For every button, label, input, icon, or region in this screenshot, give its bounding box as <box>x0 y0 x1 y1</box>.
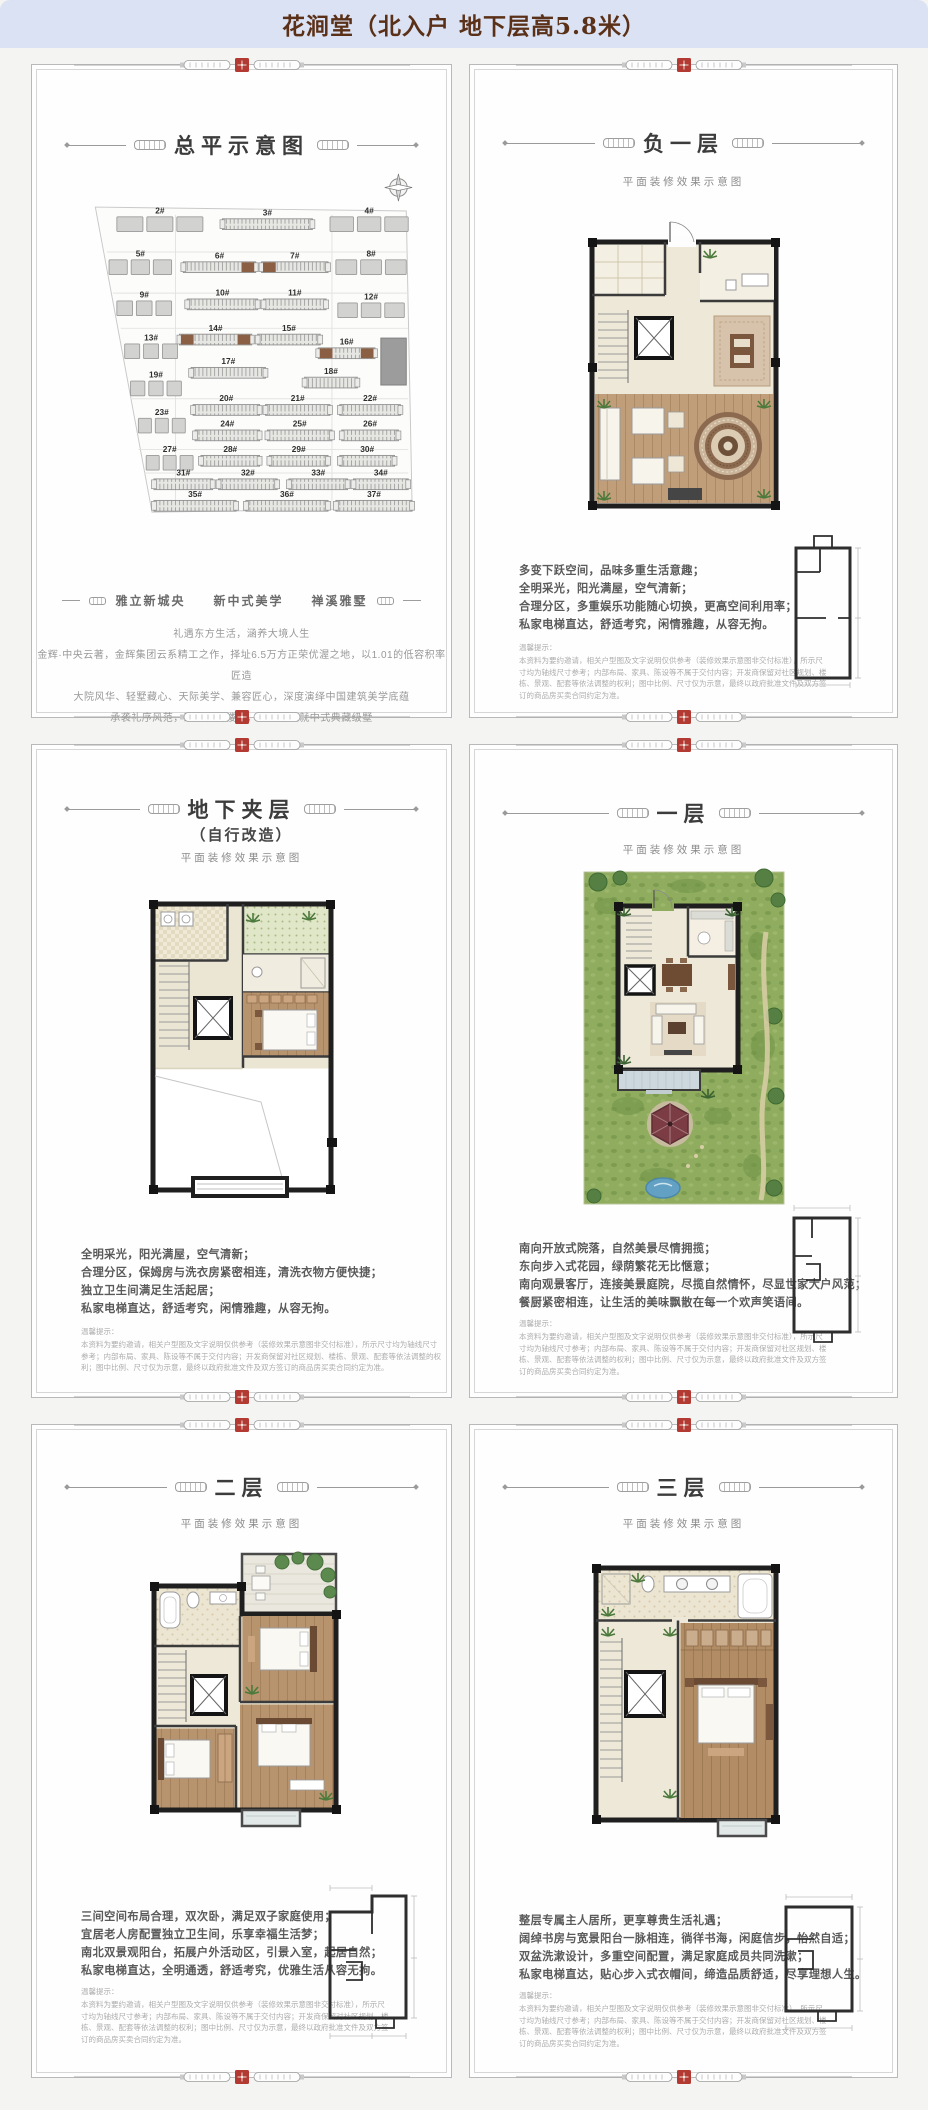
svg-text:31#: 31# <box>176 467 190 477</box>
panel-frame: 总平示意图 <box>36 69 447 713</box>
panel-title-row: 三层 <box>504 1472 863 1502</box>
svg-text:30#: 30# <box>360 444 374 454</box>
project-tagline: 雅立新城央 新中式美学 禅溪雅墅 <box>115 592 367 609</box>
panel-title-row: 负一层 <box>504 128 863 158</box>
scroll-ornament-icon <box>514 708 854 726</box>
svg-text:5#: 5# <box>135 248 145 258</box>
title-cap-icon <box>148 804 180 814</box>
svg-text:32#: 32# <box>240 467 254 477</box>
scroll-ornament-icon <box>514 1388 854 1406</box>
svg-text:36#: 36# <box>280 489 294 499</box>
panel-subtitle: 平面装修效果示意图 <box>475 174 892 189</box>
description-line: 金辉·中央云著，金辉集团云系精工之作，择址6.5万方正荣优渥之地，以1.01的低… <box>37 645 446 687</box>
panel-title: 一层 <box>657 798 711 828</box>
panel-frame: 一层 平面装修效果示意图 <box>474 749 893 1393</box>
panel-title: 总平示意图 <box>174 130 309 160</box>
svg-text:7#: 7# <box>290 250 300 260</box>
tagline-rule-icon <box>62 600 81 601</box>
svg-text:24#: 24# <box>220 419 234 429</box>
svg-text:6#: 6# <box>214 250 224 260</box>
page-header: 花涧堂（北入户 地下层高5.8米） <box>0 0 928 48</box>
floor-plan-level-3 <box>572 1554 796 1840</box>
panel-title-row: 一层 <box>504 798 863 828</box>
disclaimer-body: 本资料为要约邀请，相关户型图及文字说明仅供参考（装修效果示意图非交付标准），所示… <box>81 1339 441 1374</box>
scroll-ornament-icon <box>514 736 854 754</box>
scroll-ornament-icon <box>72 1388 412 1406</box>
panel-subtitle: 平面装修效果示意图 <box>37 850 446 865</box>
scroll-ornament-icon <box>72 56 412 74</box>
panel-title-row: 总平示意图 <box>66 130 418 160</box>
svg-text:25#: 25# <box>292 419 306 429</box>
site-plan-map: 2#3#4#5#6#7#8#9#10#11#12#13#14#15#16#17#… <box>56 166 428 518</box>
svg-text:28#: 28# <box>223 444 237 454</box>
key-plan <box>774 1885 866 2031</box>
svg-text:14#: 14# <box>208 323 222 333</box>
scroll-ornament-icon <box>72 708 412 726</box>
svg-text:34#: 34# <box>373 467 387 477</box>
title-cap-icon <box>617 808 649 818</box>
feature-line: 独立卫生间满足生活起居； <box>81 1282 382 1300</box>
svg-text:26#: 26# <box>363 419 377 429</box>
feature-line: 私家电梯直达，舒适考究，闲情雅趣，从容无拘。 <box>519 616 797 634</box>
feature-line: 全明采光，阳光满屋，空气清新； <box>81 1246 382 1264</box>
scroll-ornament-icon <box>514 56 854 74</box>
title-rule-icon <box>344 809 418 810</box>
title-cap-icon <box>175 1482 207 1492</box>
title-rule-icon <box>317 1487 418 1488</box>
panel-frame: 地下夹层 （自行改造） 平面装修效果示意图 <box>36 749 447 1393</box>
flyer-page: 花涧堂（北入户 地下层高5.8米） 总平示意图 <box>0 0 928 2110</box>
svg-text:9#: 9# <box>139 290 149 300</box>
floor-plan-level-2 <box>130 1542 354 1842</box>
feature-line: 私家电梯直达，舒适考究，闲情雅趣，从容无拘。 <box>81 1300 382 1318</box>
title-cap-icon <box>603 138 635 148</box>
feature-line: 多变下跃空间，品味多重生活意趣； <box>519 562 797 580</box>
tagline-row: 雅立新城央 新中式美学 禅溪雅墅 <box>62 592 422 609</box>
title-cap-icon <box>134 140 166 150</box>
panel-frame: 负一层 平面装修效果示意图 <box>474 69 893 713</box>
panel-floor-2: 二层 平面装修效果示意图 <box>31 1424 452 2078</box>
svg-text:4#: 4# <box>364 205 374 215</box>
description-line: 大院风华、轻墅藏心、天际美学、兼容匠心，深度演绎中国建筑美学底蕴 <box>37 687 446 708</box>
title-cap-icon <box>317 140 349 150</box>
panel-floor-3: 三层 平面装修效果示意图 <box>469 1424 898 2078</box>
svg-text:29#: 29# <box>291 444 305 454</box>
disclaimer: 温馨提示： 本资料为要约邀请，相关户型图及文字说明仅供参考（装修效果示意图非交付… <box>519 642 829 702</box>
svg-text:16#: 16# <box>339 336 353 346</box>
panel-floor-1: 一层 平面装修效果示意图 <box>469 744 898 1398</box>
title-rule-icon <box>66 1487 167 1488</box>
scroll-ornament-icon <box>72 2068 412 2086</box>
panel-site-plan: 总平示意图 <box>31 64 452 718</box>
panel-frame: 三层 平面装修效果示意图 <box>474 1429 893 2073</box>
feature-line: 全明采光，阳光满屋，空气清新； <box>519 580 797 598</box>
panel-title: 地下夹层 <box>188 794 296 824</box>
scroll-ornament-icon <box>72 736 412 754</box>
title-rule-icon <box>504 813 608 814</box>
svg-text:19#: 19# <box>149 370 163 380</box>
svg-text:22#: 22# <box>363 393 377 403</box>
description-line: 礼遇东方生活，涵养大境人生 <box>37 624 446 645</box>
svg-text:20#: 20# <box>219 393 233 403</box>
svg-text:12#: 12# <box>364 291 378 301</box>
svg-text:17#: 17# <box>221 356 235 366</box>
svg-text:2#: 2# <box>155 205 165 215</box>
svg-text:27#: 27# <box>162 444 176 454</box>
floor-features: 多变下跃空间，品味多重生活意趣； 全明采光，阳光满屋，空气清新； 合理分区，多重… <box>519 562 797 635</box>
svg-text:37#: 37# <box>367 489 381 499</box>
disclaimer: 温馨提示： 本资料为要约邀请，相关户型图及文字说明仅供参考（装修效果示意图非交付… <box>81 1326 441 1374</box>
title-rule-icon <box>759 813 863 814</box>
compass-icon <box>384 174 411 201</box>
title-rule-icon <box>759 1487 863 1488</box>
feature-line: 合理分区，多重娱乐功能随心切换，更高空间利用率； <box>519 598 797 616</box>
panel-title: 三层 <box>657 1472 711 1502</box>
svg-text:3#: 3# <box>262 207 272 217</box>
title-cap-icon <box>719 808 751 818</box>
svg-text:8#: 8# <box>366 248 376 258</box>
title-rule-icon <box>504 143 595 144</box>
svg-text:11#: 11# <box>288 288 302 298</box>
panel-basement-1: 负一层 平面装修效果示意图 <box>469 64 898 718</box>
panel-subtitle: 平面装修效果示意图 <box>475 842 892 857</box>
scroll-ornament-icon <box>72 1416 412 1434</box>
key-plan <box>316 1878 420 2040</box>
svg-text:10#: 10# <box>215 288 229 298</box>
svg-text:23#: 23# <box>154 407 168 417</box>
disclaimer-title: 温馨提示： <box>519 642 829 653</box>
svg-text:18#: 18# <box>324 366 338 376</box>
title-cap-icon <box>277 1482 309 1492</box>
panel-title-note: （自行改造） <box>37 824 446 845</box>
floor-plan-mezzanine <box>139 890 345 1202</box>
title-cap-icon <box>732 138 764 148</box>
svg-text:33#: 33# <box>311 467 325 477</box>
key-plan <box>782 1198 866 1350</box>
panel-grid: 总平示意图 <box>0 48 928 2110</box>
tagline-knot-icon <box>89 597 106 605</box>
panel-subtitle: 平面装修效果示意图 <box>475 1516 892 1531</box>
scroll-ornament-icon <box>514 1416 854 1434</box>
tagline-knot-icon <box>377 597 394 605</box>
title-rule-icon <box>504 1487 608 1488</box>
title-rule-icon <box>66 809 140 810</box>
svg-text:15#: 15# <box>282 323 296 333</box>
floor-plan-level-1 <box>568 866 800 1210</box>
panel-subtitle: 平面装修效果示意图 <box>37 1516 446 1531</box>
svg-text:13#: 13# <box>144 333 158 343</box>
page-title: 花涧堂（北入户 地下层高5.8米） <box>282 7 646 41</box>
svg-text:35#: 35# <box>188 489 202 499</box>
panel-title-row: 地下夹层 <box>66 794 418 824</box>
title-rule-icon <box>357 145 417 146</box>
panel-frame: 二层 平面装修效果示意图 <box>36 1429 447 2073</box>
title-rule-icon <box>772 143 863 144</box>
panel-title: 负一层 <box>643 128 724 158</box>
disclaimer-body: 本资料为要约邀请，相关户型图及文字说明仅供参考（装修效果示意图非交付标准），所示… <box>519 655 829 702</box>
floor-features: 全明采光，阳光满屋，空气清新； 合理分区，保姆房与洗衣房紧密相连，清洗衣物方便快… <box>81 1246 382 1319</box>
floor-plan-basement <box>576 218 792 514</box>
tagline-rule-icon <box>403 600 422 601</box>
title-rule-icon <box>66 145 126 146</box>
scroll-ornament-icon <box>514 2068 854 2086</box>
key-plan <box>786 522 866 688</box>
panel-title: 二层 <box>215 1472 269 1502</box>
panel-mezzanine: 地下夹层 （自行改造） 平面装修效果示意图 <box>31 744 452 1398</box>
title-cap-icon <box>617 1482 649 1492</box>
panel-title-row: 二层 <box>66 1472 418 1502</box>
feature-line: 合理分区，保姆房与洗衣房紧密相连，清洗衣物方便快捷； <box>81 1264 382 1282</box>
disclaimer-title: 温馨提示： <box>81 1326 441 1337</box>
svg-text:21#: 21# <box>290 393 304 403</box>
title-cap-icon <box>304 804 336 814</box>
utility-building <box>380 338 405 385</box>
title-cap-icon <box>719 1482 751 1492</box>
